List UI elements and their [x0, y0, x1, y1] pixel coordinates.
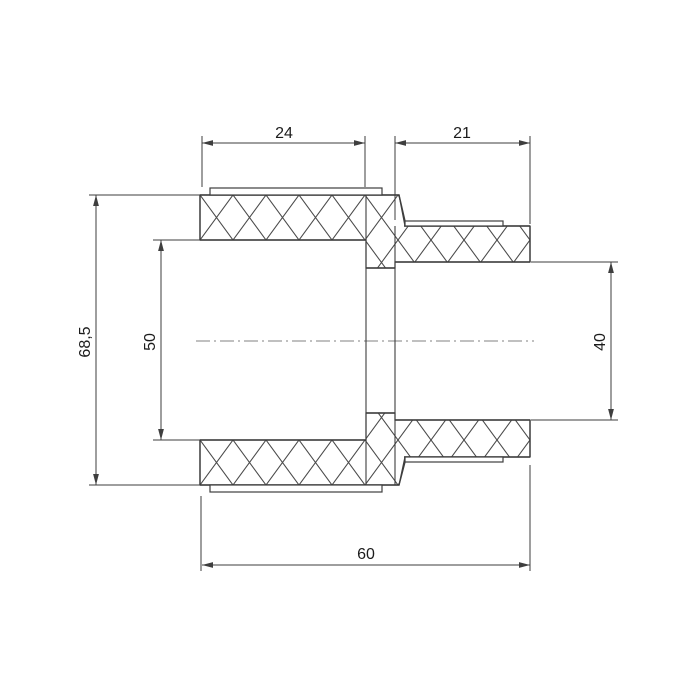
dim-label-60: 60 [357, 546, 375, 563]
right-bottom-lip [405, 457, 503, 462]
technical-drawing-canvas: 24 21 60 68,5 [0, 0, 700, 700]
arrowhead-top [608, 262, 614, 273]
arrowhead-top [93, 195, 99, 206]
arrowhead-left [395, 140, 406, 146]
arrowhead-right [354, 140, 365, 146]
dim-label-24: 24 [275, 125, 293, 142]
right-top-lip [405, 221, 503, 226]
reducer-coupling-section-drawing: 24 21 60 68,5 [0, 0, 700, 700]
hatch-regions [200, 195, 530, 485]
arrowhead-top [158, 240, 164, 251]
dim-label-68-5: 68,5 [77, 326, 94, 357]
arrowhead-bottom [158, 429, 164, 440]
arrowhead-right [519, 562, 530, 568]
dimension-50: 50 [142, 240, 208, 440]
arrowhead-bottom [93, 474, 99, 485]
dim-label-21: 21 [453, 125, 471, 142]
arrowhead-bottom [608, 409, 614, 420]
top-wall-hatch [200, 195, 530, 268]
dim-label-40: 40 [592, 333, 609, 351]
arrowhead-left [202, 562, 213, 568]
left-bore-edges [200, 240, 366, 440]
arrowhead-left [202, 140, 213, 146]
dimension-40: 40 [531, 262, 618, 420]
left-bottom-lip [210, 485, 382, 492]
dimension-68-5: 68,5 [77, 195, 200, 485]
dimension-21: 21 [395, 125, 530, 224]
dimension-24: 24 [202, 125, 365, 187]
left-top-lip [210, 188, 382, 195]
arrowhead-right [519, 140, 530, 146]
dim-label-50: 50 [142, 333, 159, 351]
bottom-wall-hatch [200, 413, 530, 485]
